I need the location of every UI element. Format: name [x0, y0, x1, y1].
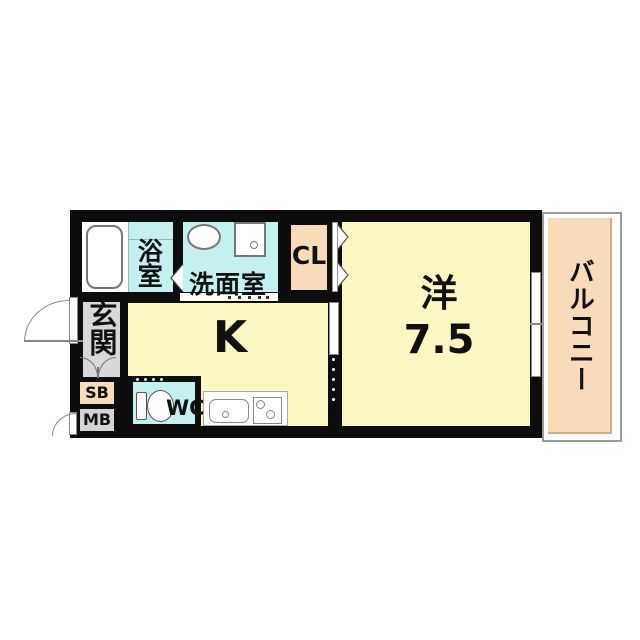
bath-door-icon [170, 263, 184, 293]
closet-folding-door-icon [337, 223, 349, 251]
kitchen-sink-icon [209, 399, 249, 423]
wc-label: WC [166, 396, 205, 420]
room-balcony: バルコニー [548, 218, 612, 434]
meter-box-label: MB [77, 410, 117, 429]
bathtub-icon [86, 225, 123, 289]
wc-door-track-dot [144, 378, 147, 381]
balcony-window-center-tick [530, 323, 542, 325]
sliding-door-track-dot [332, 378, 335, 381]
closet-label: CL [291, 241, 327, 270]
meterbox-door-swing-arc [52, 413, 76, 436]
entrance-door-open-line [24, 340, 83, 342]
kitchen-sliding-door-panel [329, 302, 339, 355]
kitchen-sink-drain-icon [222, 411, 229, 418]
entrance-door-swing-arc [24, 300, 69, 342]
sliding-door-track-dot [332, 358, 335, 361]
western-room-type: 洋 [379, 272, 499, 316]
western-room-label: 洋 7.5 [379, 272, 499, 364]
washing-machine-icon [234, 222, 266, 257]
sliding-door-track-dot [332, 388, 335, 391]
stove-burner-icon [256, 400, 265, 409]
washing-machine-knob-icon [250, 241, 258, 249]
stove-burner-icon [266, 410, 275, 419]
balcony-label: バルコニー [564, 258, 595, 393]
washroom-label: 洗面室 [189, 265, 267, 301]
bath-label: 浴室 [135, 238, 161, 288]
closet-folding-door-icon [337, 261, 349, 289]
washbasin-icon [187, 224, 221, 250]
balcony-window [531, 272, 541, 377]
entrance-label: 玄関 [87, 300, 116, 356]
entrance-door-leaf [69, 297, 78, 344]
wc-door-track-dot [160, 378, 163, 381]
wc-door-track-dot [152, 378, 155, 381]
floorplan-canvas: バルコニー 浴室 洗面室 CL 玄関 SB MB WC K 洋 7.5 [0, 0, 640, 640]
sliding-door-track-dot [332, 398, 335, 401]
wc-door-track-dot [136, 378, 139, 381]
shoe-box-label: SB [77, 383, 117, 402]
kitchen-label: K [200, 312, 260, 363]
sliding-door-track-dot [332, 368, 335, 371]
shoebox-door-center-line [97, 367, 99, 378]
western-room-size: 7.5 [379, 316, 499, 364]
toilet-tank-icon [136, 392, 147, 420]
